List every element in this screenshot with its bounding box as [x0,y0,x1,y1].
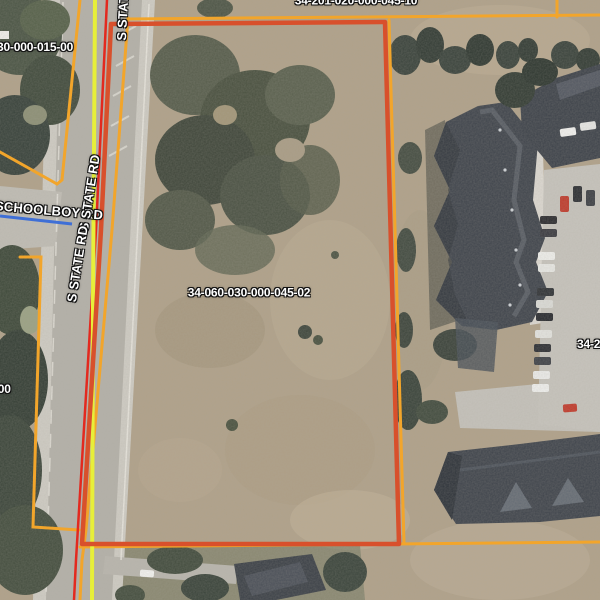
subject-parcel-boundary[interactable] [82,22,399,544]
aerial-imagery [0,0,600,600]
parcel-map-viewport[interactable]: 34-201-020-000-045-10 30-000-015-00 SCHO… [0,0,600,600]
